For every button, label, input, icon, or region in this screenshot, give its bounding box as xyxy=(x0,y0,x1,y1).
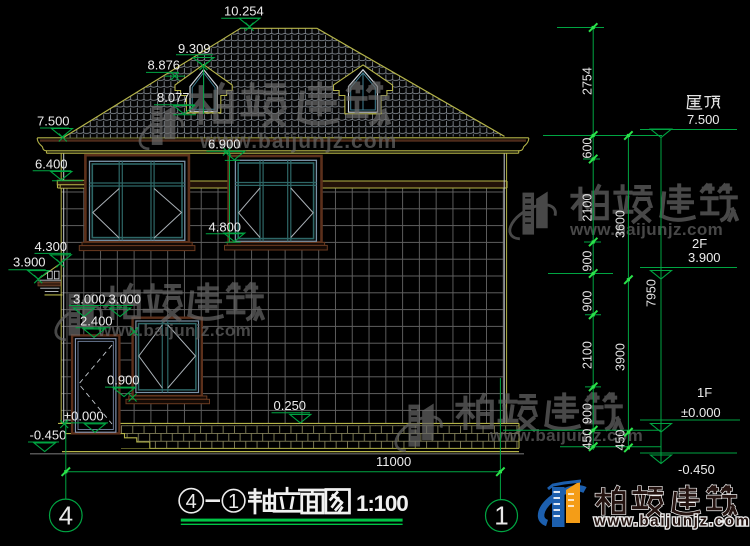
svg-text:10.254: 10.254 xyxy=(224,4,264,19)
svg-text:6.400: 6.400 xyxy=(35,157,68,172)
svg-text:8.876: 8.876 xyxy=(148,58,181,73)
svg-text:3900: 3900 xyxy=(614,343,628,371)
svg-text:2754: 2754 xyxy=(581,67,595,95)
svg-text:3600: 3600 xyxy=(614,210,628,238)
svg-text:900: 900 xyxy=(581,403,595,424)
svg-text:9.309: 9.309 xyxy=(178,41,211,56)
svg-text:1: 1 xyxy=(228,491,239,513)
svg-text:4: 4 xyxy=(59,501,73,531)
svg-text:3.000: 3.000 xyxy=(73,292,106,307)
svg-text:1F: 1F xyxy=(697,385,712,400)
svg-text:3.000: 3.000 xyxy=(109,292,142,307)
svg-text:-0.450: -0.450 xyxy=(30,428,67,443)
svg-text:-0.450: -0.450 xyxy=(678,462,715,477)
svg-text:2100: 2100 xyxy=(581,341,595,369)
svg-text:7.500: 7.500 xyxy=(37,114,70,129)
svg-text:3.900: 3.900 xyxy=(688,250,721,265)
svg-text:±0.000: ±0.000 xyxy=(681,405,721,420)
svg-text:900: 900 xyxy=(581,291,595,312)
svg-text:8.077: 8.077 xyxy=(157,90,190,105)
svg-text:4.800: 4.800 xyxy=(209,220,242,235)
svg-text:4.300: 4.300 xyxy=(35,239,68,254)
svg-text:1:100: 1:100 xyxy=(356,491,408,516)
svg-text:www.baijunjz.com: www.baijunjz.com xyxy=(593,513,750,530)
svg-text:±0.000: ±0.000 xyxy=(64,409,104,424)
svg-text:450: 450 xyxy=(614,430,628,451)
svg-text:0.900: 0.900 xyxy=(107,373,140,388)
svg-text:2100: 2100 xyxy=(581,194,595,222)
svg-text:450: 450 xyxy=(581,429,595,450)
svg-text:600: 600 xyxy=(581,138,595,159)
svg-text:2F: 2F xyxy=(692,236,707,251)
svg-text:www.baijunjz.com: www.baijunjz.com xyxy=(97,321,251,340)
svg-text:4: 4 xyxy=(186,491,197,513)
svg-text:3.900: 3.900 xyxy=(13,255,46,270)
svg-text:2.400: 2.400 xyxy=(80,314,113,329)
svg-text:6.900: 6.900 xyxy=(208,137,241,152)
svg-text:7950: 7950 xyxy=(645,279,659,307)
svg-text:7.500: 7.500 xyxy=(687,112,720,127)
svg-text:11000: 11000 xyxy=(376,454,411,469)
svg-text:0.250: 0.250 xyxy=(274,398,307,413)
svg-text:900: 900 xyxy=(581,251,595,272)
svg-text:1: 1 xyxy=(494,501,508,531)
